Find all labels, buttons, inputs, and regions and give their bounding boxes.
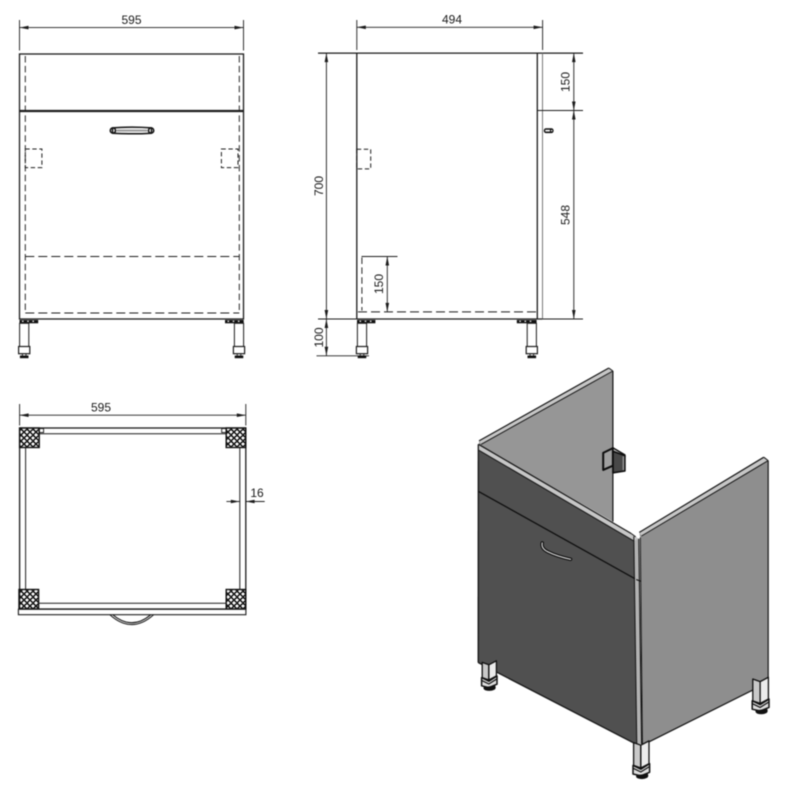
svg-text:595: 595 xyxy=(121,13,141,27)
svg-text:16: 16 xyxy=(250,486,264,500)
svg-text:595: 595 xyxy=(91,400,111,414)
svg-text:150: 150 xyxy=(372,274,386,294)
svg-text:100: 100 xyxy=(312,327,326,347)
svg-text:700: 700 xyxy=(312,176,326,196)
svg-text:548: 548 xyxy=(559,205,573,225)
svg-text:494: 494 xyxy=(442,13,462,27)
svg-text:150: 150 xyxy=(559,72,573,92)
